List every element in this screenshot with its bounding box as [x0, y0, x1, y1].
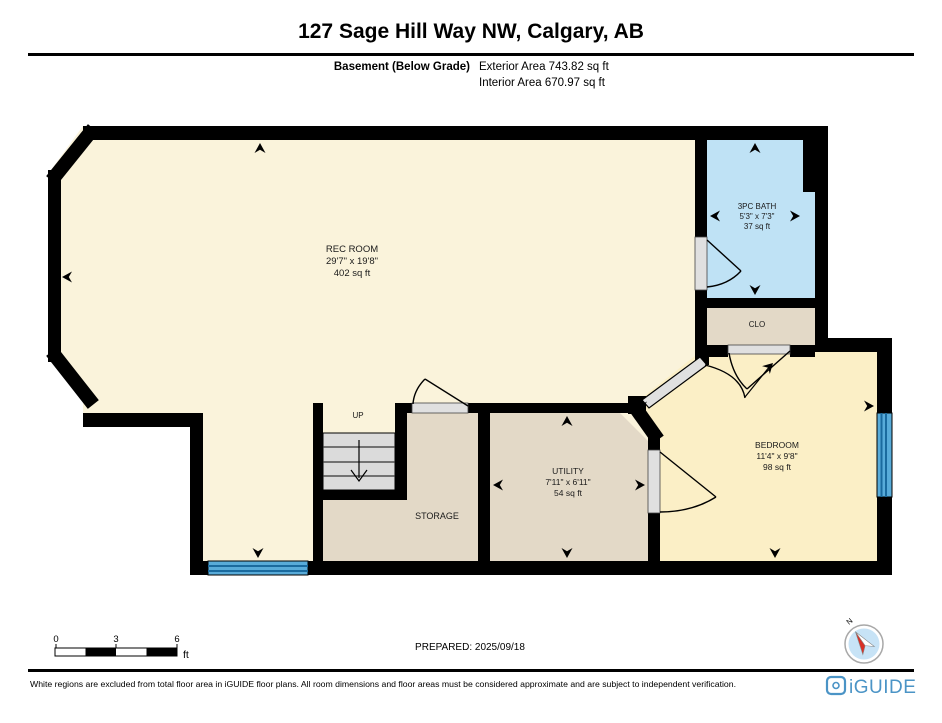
utility-area [490, 413, 648, 561]
bath-sqft: 37 sq ft [744, 222, 771, 231]
scale-tick-0: 0 [53, 634, 58, 645]
storage-label: STORAGE [415, 511, 459, 521]
scale-unit-label: ft [183, 649, 189, 661]
bath-dims: 5'3" x 7'3" [740, 212, 775, 221]
disclaimer-text: White regions are excluded from total fl… [30, 679, 830, 689]
utility-sqft: 54 sq ft [554, 488, 583, 498]
bedroom-label: BEDROOM [755, 440, 799, 450]
door-sill [412, 403, 468, 413]
utility-dims: 7'11" x 6'11" [545, 477, 590, 487]
wall-segment [478, 403, 490, 561]
storage-area [323, 500, 478, 561]
iguide-logo-text: iGUIDE [849, 677, 916, 698]
compass-icon: N [845, 616, 883, 663]
wall-segment [83, 126, 828, 140]
stairs-up-label: UP [352, 411, 363, 420]
bath-label: 3PC BATH [738, 202, 777, 211]
closet-label: CLO [749, 320, 765, 329]
compass-north-label: N [845, 616, 855, 626]
wall-segment [313, 403, 323, 561]
wall-segment [648, 430, 660, 450]
wall-segment [803, 140, 815, 192]
scale-bar: 0 3 6 ft [53, 634, 189, 661]
wall-segment [468, 403, 632, 413]
prepared-date: PREPARED: 2025/09/18 [320, 642, 620, 653]
door-sill [648, 450, 660, 513]
bedroom-dims: 11'4" x 9'8" [756, 451, 797, 461]
wall-segment [790, 345, 815, 357]
utility-label: UTILITY [552, 466, 584, 476]
door-sill [728, 345, 790, 354]
wall-segment [695, 298, 815, 308]
scale-tick-3: 3 [113, 634, 118, 645]
scale-tick-6: 6 [174, 634, 179, 645]
bedroom-sqft: 98 sq ft [763, 462, 792, 472]
window [208, 561, 308, 575]
wall-segment [83, 413, 203, 427]
wall-segment [313, 490, 407, 500]
staircase [323, 433, 395, 490]
window [877, 413, 892, 497]
wall-segment [648, 513, 660, 561]
rec-room-dims: 29'7" x 19'8" [326, 256, 378, 267]
wall-segment [48, 170, 61, 362]
wall-segment [395, 403, 407, 500]
rec-room-label: REC ROOM [326, 244, 378, 255]
rec-room-sqft: 402 sq ft [334, 268, 371, 279]
wall-segment [190, 420, 203, 575]
iguide-logo: iGUIDE [827, 677, 916, 698]
floor-plan: REC ROOM 29'7" x 19'8" 402 sq ft 3PC BAT… [0, 0, 942, 723]
door-sill [695, 237, 707, 290]
footer-divider [28, 669, 914, 672]
wall-segment [815, 126, 828, 352]
wall-segment [695, 140, 707, 237]
